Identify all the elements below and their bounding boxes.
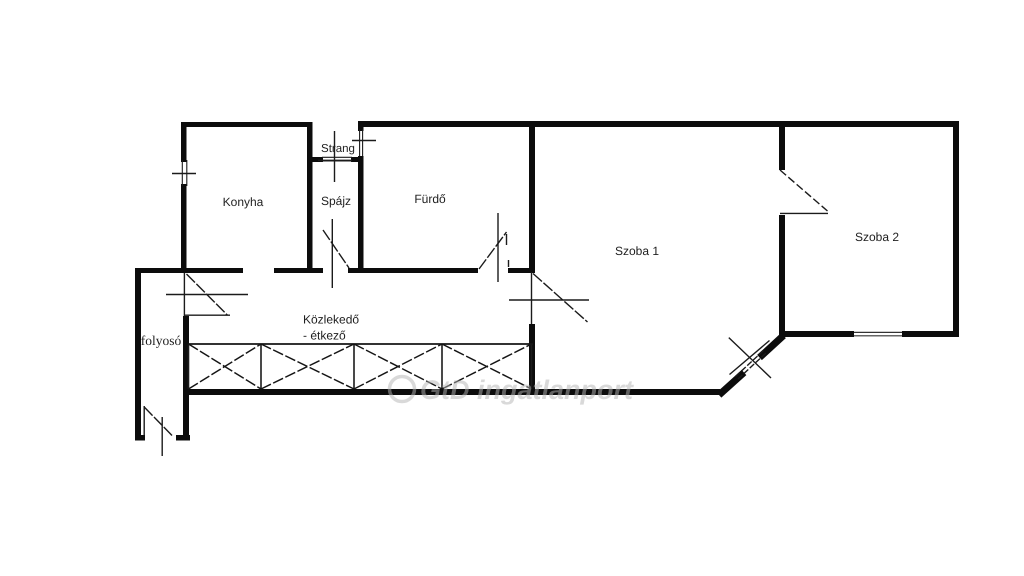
- svg-text:GtD ingatlanport: GtD ingatlanport: [420, 375, 634, 405]
- svg-text:Konyha: Konyha: [223, 195, 264, 209]
- svg-text:folyosó: folyosó: [141, 333, 182, 348]
- svg-text:Spájz: Spájz: [321, 194, 351, 208]
- svg-text:Strang: Strang: [321, 143, 355, 155]
- svg-text:Szoba 2: Szoba 2: [855, 230, 899, 244]
- svg-text:Szoba 1: Szoba 1: [615, 244, 659, 258]
- svg-text:- étkező: - étkező: [303, 329, 346, 343]
- svg-text:Közlekedő: Közlekedő: [303, 313, 359, 327]
- svg-text:Fürdő: Fürdő: [414, 192, 446, 206]
